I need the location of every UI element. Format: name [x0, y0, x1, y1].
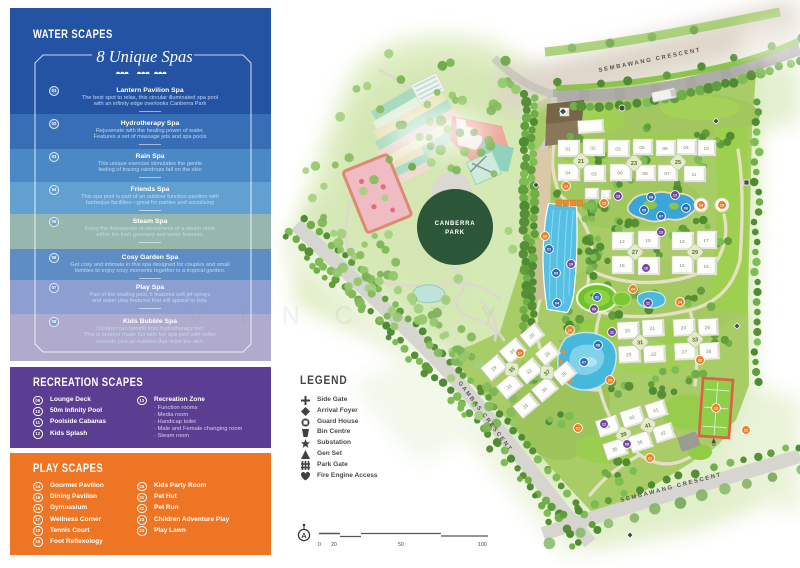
svg-text:04: 04 [683, 145, 689, 151]
svg-text:02: 02 [590, 145, 596, 151]
svg-text:22: 22 [648, 457, 652, 461]
svg-text:06: 06 [662, 146, 668, 152]
svg-text:20: 20 [698, 359, 702, 363]
svg-text:03: 03 [615, 146, 621, 152]
svg-text:12: 12 [673, 194, 677, 198]
svg-text:A: A [301, 531, 307, 540]
svg-text:12: 12 [602, 423, 606, 427]
svg-text:21: 21 [576, 427, 580, 431]
svg-text:05: 05 [639, 145, 645, 151]
svg-text:02: 02 [547, 248, 551, 252]
svg-text:18: 18 [679, 239, 685, 245]
svg-text:11: 11 [646, 302, 650, 306]
svg-text:23: 23 [608, 379, 612, 383]
svg-text:16: 16 [703, 264, 709, 270]
svg-text:18: 18 [714, 407, 718, 411]
svg-text:09: 09 [592, 308, 596, 312]
svg-text:15: 15 [720, 204, 724, 208]
svg-text:10: 10 [703, 146, 709, 152]
svg-text:24: 24 [681, 325, 687, 331]
svg-text:31: 31 [637, 340, 644, 346]
svg-text:27: 27 [682, 349, 688, 355]
svg-text:22: 22 [744, 429, 748, 433]
svg-text:11: 11 [692, 172, 697, 178]
svg-text:50: 50 [398, 542, 404, 548]
svg-text:09: 09 [617, 170, 623, 176]
svg-text:23: 23 [631, 161, 637, 167]
svg-text:20: 20 [625, 328, 631, 334]
svg-text:01: 01 [565, 146, 571, 152]
svg-text:29: 29 [692, 250, 698, 256]
svg-text:16: 16 [619, 263, 625, 269]
svg-text:01: 01 [595, 296, 599, 300]
svg-text:16: 16 [568, 329, 572, 333]
svg-text:CANBERRA: CANBERRA [435, 221, 476, 227]
svg-text:27: 27 [632, 250, 638, 256]
svg-text:26: 26 [705, 325, 711, 331]
svg-text:20: 20 [331, 542, 337, 548]
svg-text:26: 26 [706, 349, 712, 355]
svg-text:11: 11 [610, 331, 614, 335]
svg-text:08: 08 [642, 171, 648, 177]
svg-text:09: 09 [625, 443, 629, 447]
svg-text:12: 12 [619, 239, 625, 245]
svg-text:05: 05 [642, 209, 646, 213]
svg-text:10: 10 [569, 263, 573, 267]
svg-text:07: 07 [664, 171, 670, 177]
svg-text:13: 13 [616, 195, 620, 199]
svg-text:PARK: PARK [445, 230, 465, 236]
svg-text:15: 15 [645, 238, 651, 244]
svg-text:17: 17 [518, 352, 522, 356]
svg-text:04: 04 [565, 170, 571, 176]
svg-text:13: 13 [659, 231, 663, 235]
svg-text:07: 07 [582, 361, 586, 365]
svg-text:08: 08 [649, 196, 653, 200]
svg-text:0: 0 [318, 542, 321, 548]
svg-text:23: 23 [626, 352, 632, 358]
svg-text:21: 21 [650, 326, 656, 332]
svg-text:06: 06 [684, 207, 688, 211]
svg-text:17: 17 [703, 238, 709, 244]
svg-text:100: 100 [478, 542, 487, 548]
svg-text:15: 15 [602, 202, 606, 206]
svg-text:21: 21 [578, 159, 584, 165]
svg-text:03: 03 [554, 272, 558, 276]
svg-text:08: 08 [596, 344, 600, 348]
svg-text:03: 03 [591, 171, 597, 177]
svg-text:25: 25 [675, 160, 681, 166]
svg-text:19: 19 [543, 235, 547, 239]
svg-text:22: 22 [651, 352, 657, 358]
svg-text:33: 33 [692, 337, 699, 343]
svg-text:10: 10 [644, 267, 648, 271]
svg-text:07: 07 [659, 215, 663, 219]
svg-text:15: 15 [679, 263, 685, 269]
